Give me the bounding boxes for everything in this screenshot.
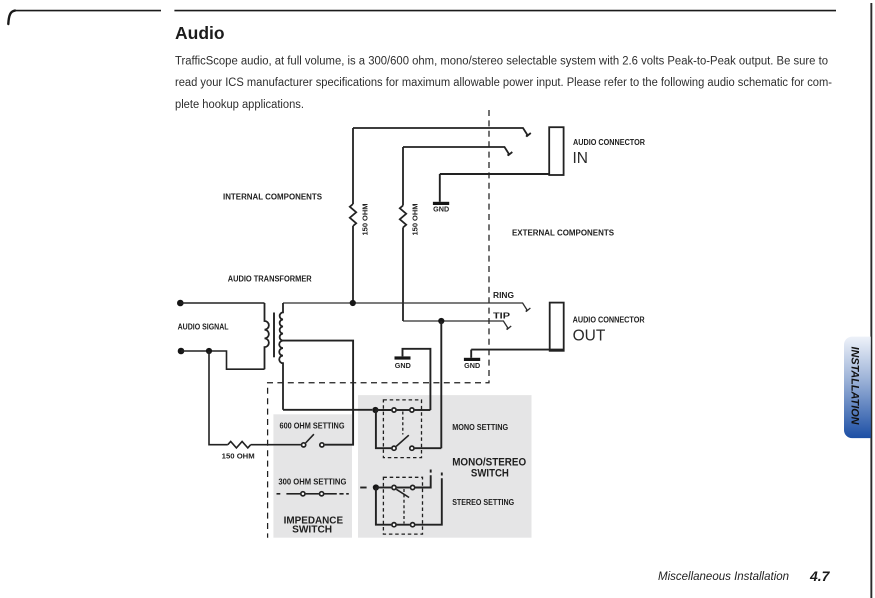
svg-text:GND: GND [433,207,449,214]
svg-text:OUT: OUT [573,327,606,344]
svg-text:MONO SETTING: MONO SETTING [452,423,508,432]
svg-text:Audio: Audio [175,23,225,43]
svg-text:4.7: 4.7 [809,568,831,584]
svg-text:AUDIO CONNECTOR: AUDIO CONNECTOR [573,316,645,325]
svg-text:IN: IN [573,150,589,167]
svg-text:plete hookup applications.: plete hookup applications. [175,99,304,111]
svg-text:150 OHM: 150 OHM [361,204,370,236]
svg-text:GND: GND [464,363,480,370]
svg-text:600 OHM SETTING: 600 OHM SETTING [280,422,345,431]
svg-text:150 OHM: 150 OHM [411,204,420,236]
svg-text:150 OHM: 150 OHM [222,452,255,461]
svg-text:read your ICS manufacturer spe: read your ICS manufacturer specification… [175,77,832,89]
svg-text:SWITCH: SWITCH [471,467,509,479]
svg-text:AUDIO SIGNAL: AUDIO SIGNAL [178,322,229,331]
svg-text:TIP: TIP [493,311,511,320]
svg-text:AUDIO CONNECTOR: AUDIO CONNECTOR [573,138,645,147]
svg-text:RING: RING [493,291,514,300]
svg-text:AUDIO TRANSFORMER: AUDIO TRANSFORMER [228,274,312,283]
svg-text:INTERNAL COMPONENTS: INTERNAL COMPONENTS [223,193,323,202]
svg-text:GND: GND [395,363,411,370]
svg-text:STEREO SETTING: STEREO SETTING [452,498,514,507]
svg-text:TrafficScope audio, at full vo: TrafficScope audio, at full volume, is a… [175,56,828,68]
svg-text:SWITCH: SWITCH [292,523,332,535]
svg-text:INSTALLATION: INSTALLATION [849,347,861,426]
svg-text:EXTERNAL COMPONENTS: EXTERNAL COMPONENTS [512,229,615,238]
svg-text:300 OHM SETTING: 300 OHM SETTING [278,477,346,486]
svg-text:Miscellaneous Installation: Miscellaneous Installation [658,571,789,583]
